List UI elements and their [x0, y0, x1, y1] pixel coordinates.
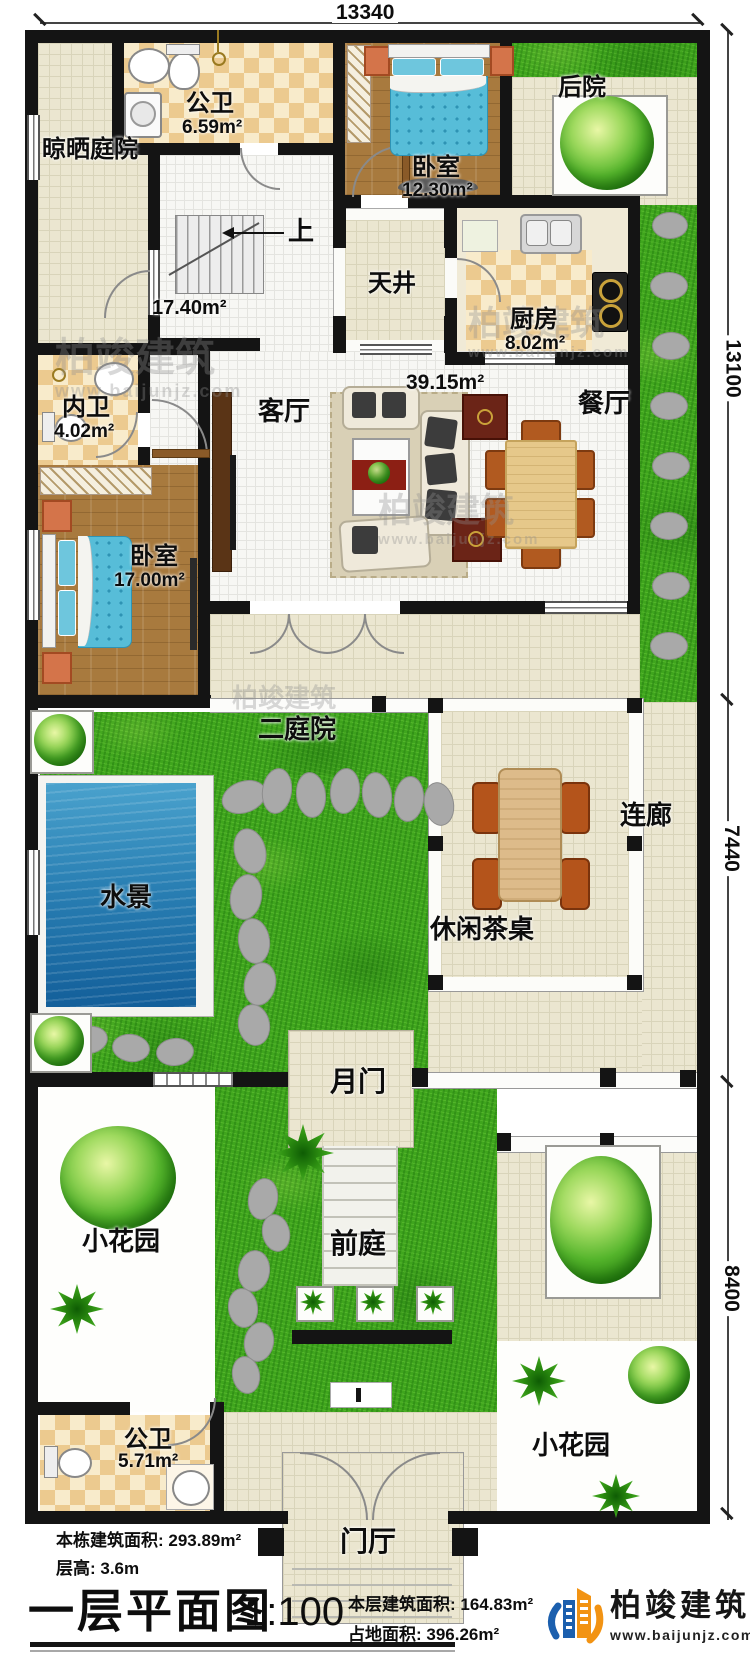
bed-headboard [388, 44, 490, 58]
wardrobe-hatch [40, 467, 152, 495]
pillow [58, 540, 76, 586]
tv-screen [230, 455, 236, 550]
room-label-tea: 休闲茶桌 [430, 916, 534, 942]
plan-scale: 1:100 [244, 1592, 344, 1632]
wall-right [697, 43, 710, 1524]
dim-top-label: 13340 [332, 2, 398, 23]
threshold-post [356, 1388, 361, 1402]
sofa-cushion [352, 392, 376, 418]
room-area-stair-hall: 17.40m² [152, 298, 227, 318]
toilet-tank [44, 1446, 58, 1478]
foyer-post-right [452, 1528, 478, 1556]
title-underline-thin [30, 1650, 455, 1652]
pavilion-post [428, 975, 443, 990]
nightstand [42, 652, 72, 684]
room-label-moongate: 月门 [330, 1068, 386, 1096]
wall-ensuite-east-b [138, 447, 150, 465]
sofa-cushion [382, 392, 406, 418]
room-area-bath-bottom: 5.71m² [118, 1452, 178, 1471]
corridor-post [600, 1068, 616, 1087]
wall-kitchen-west-b [445, 298, 457, 354]
wall-left [25, 43, 38, 1524]
skywell-post [333, 208, 346, 248]
tea-chair [560, 858, 590, 910]
garden-tree [60, 1126, 176, 1230]
wall-bottom-right [448, 1511, 710, 1524]
backyard-tree [560, 96, 654, 190]
gate-threshold [330, 1382, 392, 1408]
corridor-post [412, 1068, 428, 1087]
boundary-gate [153, 1072, 233, 1087]
room-label-backyard: 后院 [558, 76, 606, 100]
room-area-kitchen: 8.02m² [505, 334, 565, 353]
room-label-bedroom-left: 卧室 [130, 545, 178, 569]
sink [172, 1470, 210, 1506]
walkway-east [640, 702, 697, 1072]
bedroom-left-door-leaf [152, 449, 210, 458]
dim-right-bottom-label: 8400 [721, 1261, 742, 1316]
stepping-stone [650, 392, 688, 420]
wall-living-south-a [210, 601, 250, 614]
corridor-post [497, 1133, 511, 1151]
room-label-skywell: 天井 [368, 272, 416, 296]
stair-arrow-head [222, 227, 234, 239]
pavilion-post [428, 698, 443, 713]
sofa-cushion [425, 489, 458, 522]
pillow [392, 58, 436, 76]
dim-right-middle-label: 7440 [721, 821, 742, 876]
wall-bed-top-west [333, 43, 345, 195]
bed-headboard [42, 534, 56, 648]
wall-ensuite-north [38, 343, 210, 355]
kitchen-sink-basin [526, 220, 548, 246]
tree [34, 714, 86, 766]
kitchen-sink-basin [550, 220, 572, 246]
dining-table [505, 440, 577, 549]
wall-bath-bottom-north [38, 1402, 130, 1415]
wall-top [25, 30, 710, 43]
room-label-living: 客厅 [258, 398, 310, 424]
dim-tick [691, 13, 704, 26]
tea-chair [560, 782, 590, 834]
room-area-living: 39.15m² [406, 372, 484, 393]
window-west-2 [27, 530, 40, 620]
hedge-wall [292, 1330, 452, 1344]
nightstand [364, 46, 390, 76]
wall-ensuite-east-a [138, 355, 150, 413]
sofa-cushion [425, 453, 458, 486]
wall-kitchen-south-b [555, 352, 640, 365]
room-label-kitchen: 厨房 [510, 308, 558, 332]
pavilion-south-path [428, 990, 642, 1072]
room-label-foyer: 门厅 [340, 1528, 396, 1556]
wall-kitchen-west-a [445, 208, 457, 258]
land-area-text: 占地面积: 396.26m² [348, 1626, 499, 1643]
room-label-dining: 餐厅 [578, 390, 630, 416]
terrace-edge [210, 698, 428, 713]
stepping-stone [650, 512, 688, 540]
toilet [58, 1448, 92, 1478]
floor-height-text: 层高: 3.6m [56, 1560, 139, 1577]
total-area-text: 本栋建筑面积: 293.89m² [56, 1532, 241, 1549]
tree [34, 1016, 84, 1066]
sofa-cushion [424, 416, 458, 450]
dim-right-top-label: 13100 [723, 335, 744, 401]
washing-machine-drum [130, 101, 156, 127]
skywell-window [360, 344, 432, 355]
room-label-water: 水景 [100, 884, 152, 910]
wall-bedroom-left-east [198, 343, 210, 695]
room-area-ensuite: 4.02m² [54, 422, 114, 441]
side-table-dot [477, 409, 493, 425]
brand-website: www.baijunjz.com [610, 1628, 750, 1642]
boundary-wall-b [233, 1072, 288, 1087]
window-west-1 [27, 115, 40, 180]
room-label-garden-left: 小花园 [82, 1228, 160, 1254]
brand-company: 柏竣建筑 [610, 1590, 750, 1621]
foyer-post-left [258, 1528, 284, 1556]
stair-arrow-line [232, 232, 284, 234]
stepping-stone [650, 272, 688, 300]
wall-bedroom-left-south [25, 695, 211, 708]
pavilion-post [627, 836, 642, 851]
skywell-post [333, 316, 346, 353]
floor-plan: 柏竣建筑 www.baijunjz.com 柏竣建筑 www.baijunjz.… [0, 0, 750, 1661]
dim-tick [33, 13, 46, 26]
table-plant [368, 462, 390, 484]
hanging-lamp [212, 52, 226, 66]
pavilion-post [627, 975, 642, 990]
sink [94, 362, 134, 396]
hanging-lamp [52, 368, 66, 382]
boundary-wall-a [25, 1072, 153, 1087]
plan-title: 一层平面图 [28, 1588, 273, 1634]
pillow [58, 590, 76, 636]
sofa-cushion [352, 526, 378, 554]
nightstand [490, 46, 514, 76]
stepping-stone [652, 212, 688, 239]
room-label-bath-bottom: 公卫 [124, 1428, 172, 1452]
pavilion-post [627, 698, 642, 713]
stepping-stone [652, 572, 690, 600]
room-label-courtyard2: 二庭院 [258, 716, 336, 742]
tv-cabinet [212, 392, 232, 572]
living-south-window [545, 601, 627, 614]
toilet-tank [166, 44, 200, 55]
wall-bottom-left [25, 1511, 288, 1524]
sink [128, 48, 170, 84]
corridor-post [680, 1070, 696, 1087]
room-label-bedroom-top: 卧室 [412, 156, 460, 180]
fridge [462, 220, 498, 252]
brand-logo-icon [546, 1584, 604, 1646]
terrace-post [372, 696, 386, 712]
corridor-band-north [412, 1072, 697, 1089]
room-label-bath-top: 公卫 [186, 92, 234, 116]
room-label-ensuite: 内卫 [62, 396, 110, 420]
pillow [440, 58, 484, 76]
front-path [322, 1146, 398, 1286]
room-label-drying-yard: 晾晒庭院 [42, 138, 138, 162]
wall-bath-top-west [112, 43, 124, 143]
stepping-stone [652, 332, 690, 360]
burner [599, 304, 623, 328]
room-area-bedroom-left: 17.00m² [114, 571, 185, 590]
lamp-cord [217, 30, 219, 52]
wall-living-south-c [627, 601, 640, 614]
stepping-stone [652, 452, 690, 480]
pavilion-post [428, 836, 443, 851]
floor-area-text: 本层建筑面积: 164.83m² [348, 1596, 533, 1613]
tv-panel [190, 558, 197, 650]
stepping-stone [650, 632, 688, 660]
window-west-3 [27, 850, 40, 935]
burner [599, 279, 623, 303]
garden-tree [628, 1346, 690, 1404]
room-label-front-court: 前庭 [330, 1230, 386, 1258]
courtyard2-grass-top [40, 712, 428, 775]
wall-living-south-b [400, 601, 545, 614]
backyard-grass [512, 43, 697, 77]
wall-kitchen-south-a [445, 352, 485, 365]
room-label-garden-right: 小花园 [532, 1432, 610, 1458]
room-area-bath-top: 6.59m² [182, 118, 242, 137]
room-area-bedroom-top: 12.30m² [402, 181, 473, 200]
room-label-corridor: 连廊 [620, 802, 672, 828]
side-table-dot [468, 531, 484, 547]
nightstand [42, 500, 72, 532]
toilet [168, 52, 200, 90]
court-tree [550, 1156, 652, 1284]
tea-table [498, 768, 562, 902]
stair-up-label: 上 [288, 218, 314, 244]
